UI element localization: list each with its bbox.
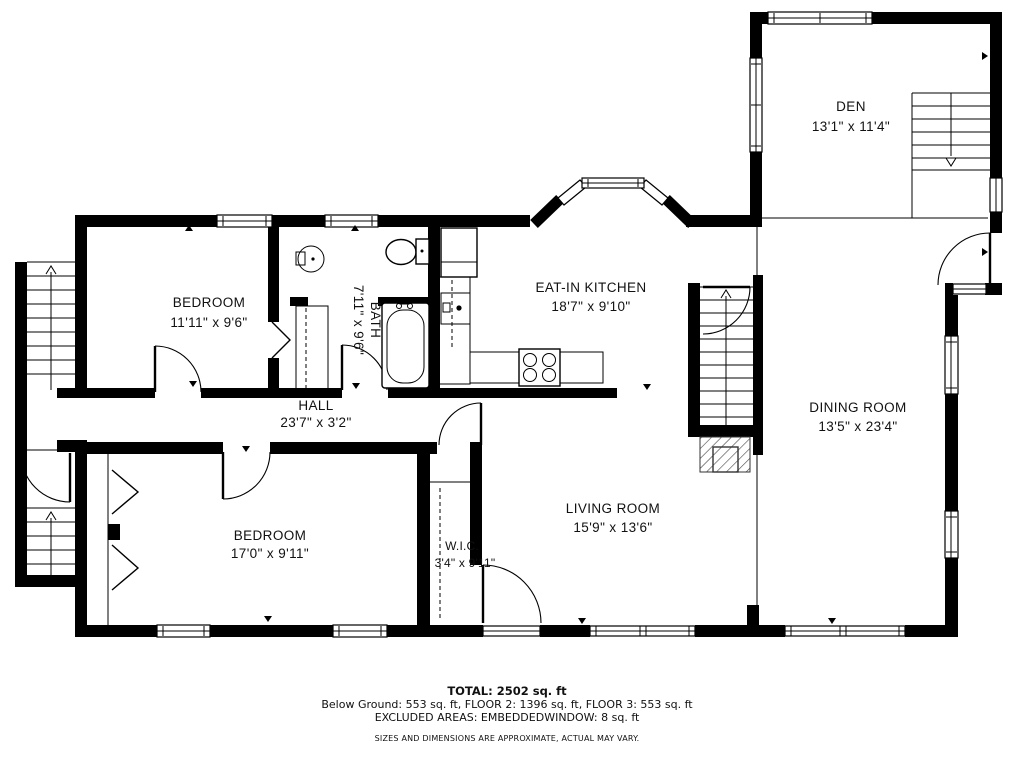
kitchen-sink-icon bbox=[441, 293, 470, 324]
room-dims-wic: 3'4" x 9'11" bbox=[435, 556, 496, 570]
room-dims-kitchen: 18'7" x 9'10" bbox=[551, 299, 630, 314]
room-dims-bath: 7'11" x 9'6" bbox=[351, 285, 366, 355]
windows bbox=[157, 12, 1002, 637]
stove-icon bbox=[519, 349, 560, 386]
floor-plan-canvas: DEN 13'1" x 11'4" BEDROOM 11'11" x 9'6" … bbox=[0, 0, 1014, 660]
room-label-bedroom1: BEDROOM bbox=[173, 295, 246, 310]
stairs-den bbox=[912, 93, 990, 170]
floor-plan-page: DEN 13'1" x 11'4" BEDROOM 11'11" x 9'6" … bbox=[0, 0, 1014, 758]
stairs-upper-left bbox=[27, 262, 75, 390]
room-dims-bedroom2: 17'0" x 9'11" bbox=[231, 546, 309, 561]
room-label-bath: BATH bbox=[368, 302, 383, 339]
room-label-hall: HALL bbox=[298, 398, 333, 413]
summary-total: TOTAL: 2502 sq. ft bbox=[0, 684, 1014, 698]
room-label-den: DEN bbox=[836, 99, 866, 114]
room-label-kitchen: EAT-IN KITCHEN bbox=[535, 280, 646, 295]
fridge-icon bbox=[441, 228, 477, 277]
bay-window bbox=[534, 178, 692, 224]
door-swing-markers bbox=[78, 52, 988, 624]
bathtub-icon bbox=[382, 300, 429, 388]
room-dims-dining: 13'5" x 23'4" bbox=[818, 419, 897, 434]
stairs-lower-left bbox=[27, 508, 75, 578]
summary-disclaimer: SIZES AND DIMENSIONS ARE APPROXIMATE, AC… bbox=[0, 734, 1014, 743]
room-dims-den: 13'1" x 11'4" bbox=[812, 119, 890, 134]
toilet-icon bbox=[386, 239, 429, 265]
room-dims-hall: 23'7" x 3'2" bbox=[280, 415, 351, 430]
room-dims-living: 15'9" x 13'6" bbox=[573, 520, 652, 535]
room-label-bath-group: BATH 7'11" x 9'6" bbox=[351, 285, 383, 355]
room-label-bedroom2: BEDROOM bbox=[234, 528, 307, 543]
room-label-wic: W.I.C. bbox=[445, 539, 479, 553]
pedestal-sink-icon bbox=[296, 246, 324, 272]
room-label-dining: DINING ROOM bbox=[809, 400, 906, 415]
room-label-living: LIVING ROOM bbox=[566, 501, 660, 516]
summary-excluded: EXCLUDED AREAS: EMBEDDEDWINDOW: 8 sq. ft bbox=[0, 711, 1014, 724]
summary-block: TOTAL: 2502 sq. ft Below Ground: 553 sq.… bbox=[0, 684, 1014, 743]
summary-floors: Below Ground: 553 sq. ft, FLOOR 2: 1396 … bbox=[0, 698, 1014, 711]
room-dims-bedroom1: 11'11" x 9'6" bbox=[170, 315, 247, 330]
fireplace bbox=[700, 437, 750, 472]
